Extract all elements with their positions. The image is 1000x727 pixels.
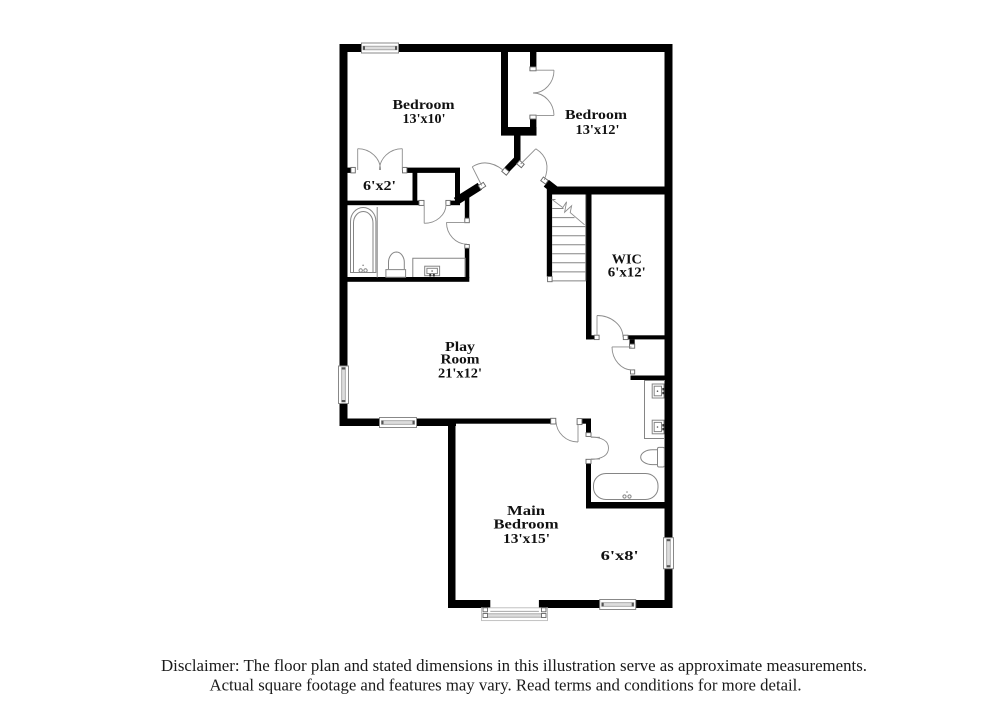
svg-text:6'x12': 6'x12' — [608, 265, 646, 280]
svg-text:Bedroom: Bedroom — [393, 98, 455, 113]
svg-text:6'x2': 6'x2' — [363, 179, 396, 194]
svg-text:13'x15': 13'x15' — [503, 532, 550, 547]
svg-text:Main: Main — [507, 504, 545, 519]
svg-text:21'x12': 21'x12' — [438, 366, 482, 381]
svg-text:Room: Room — [441, 353, 480, 368]
svg-text:13'x10': 13'x10' — [403, 112, 446, 127]
svg-text:Bedroom: Bedroom — [494, 518, 559, 533]
svg-text:Bedroom: Bedroom — [565, 108, 627, 123]
svg-text:6'x8': 6'x8' — [601, 549, 639, 564]
svg-text:Disclaimer: The floor plan and: Disclaimer: The floor plan and stated di… — [161, 656, 867, 675]
svg-text:13'x12': 13'x12' — [576, 123, 620, 138]
svg-text:Actual square footage and feat: Actual square footage and features may v… — [210, 675, 802, 694]
